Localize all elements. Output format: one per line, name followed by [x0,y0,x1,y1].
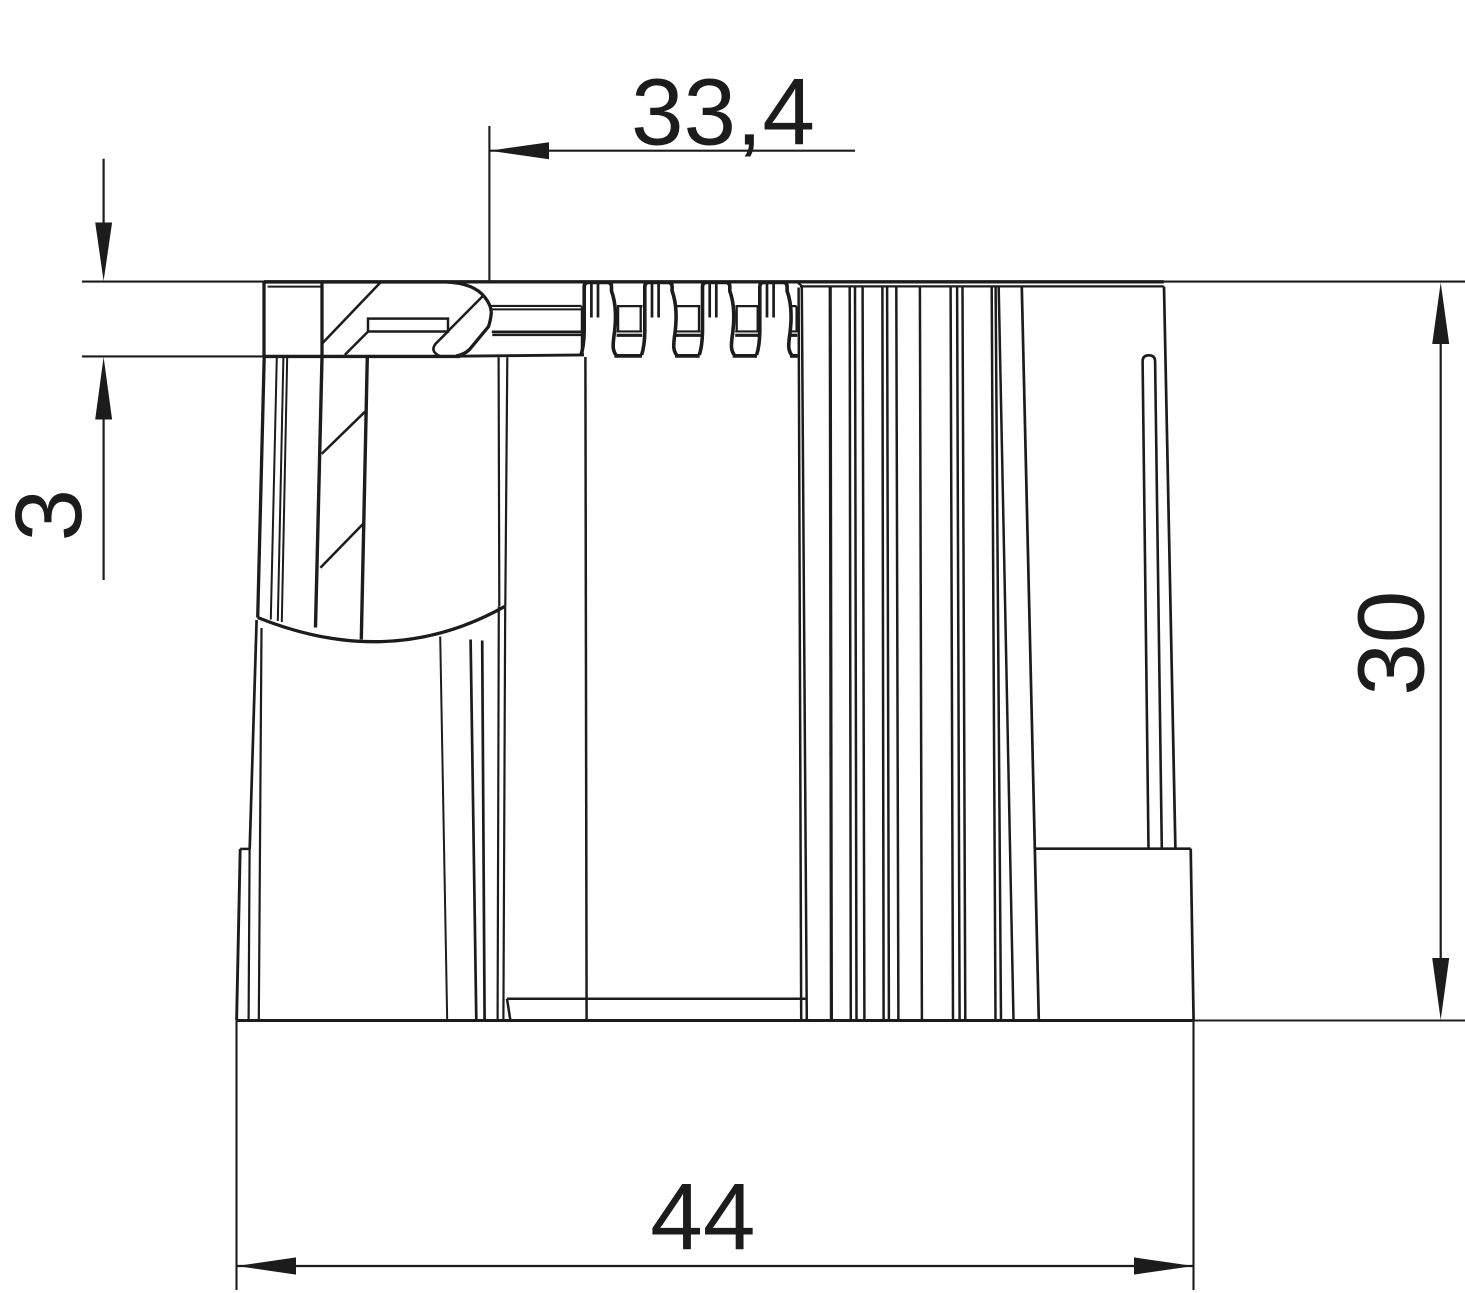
svg-text:30: 30 [1339,591,1445,696]
svg-text:3: 3 [0,489,102,542]
svg-text:44: 44 [650,1165,755,1271]
svg-text:33,4: 33,4 [631,59,815,165]
